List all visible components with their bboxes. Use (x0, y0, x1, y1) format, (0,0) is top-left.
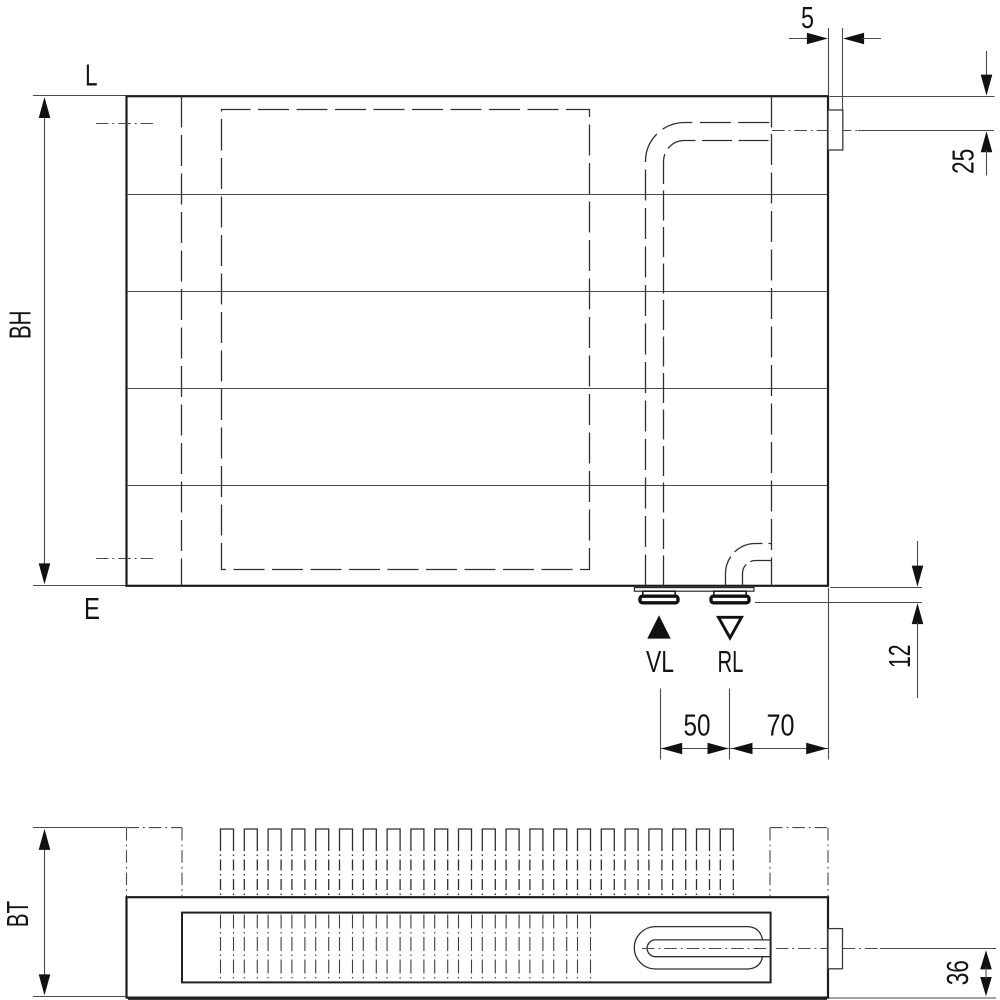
svg-text:50: 50 (684, 709, 711, 743)
svg-text:BT: BT (1, 901, 35, 928)
svg-text:RL: RL (718, 645, 744, 679)
svg-text:70: 70 (767, 709, 795, 743)
svg-text:E: E (84, 592, 100, 626)
svg-text:VL: VL (646, 645, 674, 679)
svg-text:25: 25 (947, 149, 981, 174)
svg-text:5: 5 (801, 1, 814, 35)
svg-text:BH: BH (4, 311, 38, 340)
svg-text:12: 12 (883, 645, 917, 669)
svg-text:L: L (85, 59, 98, 93)
svg-text:36: 36 (941, 960, 975, 985)
